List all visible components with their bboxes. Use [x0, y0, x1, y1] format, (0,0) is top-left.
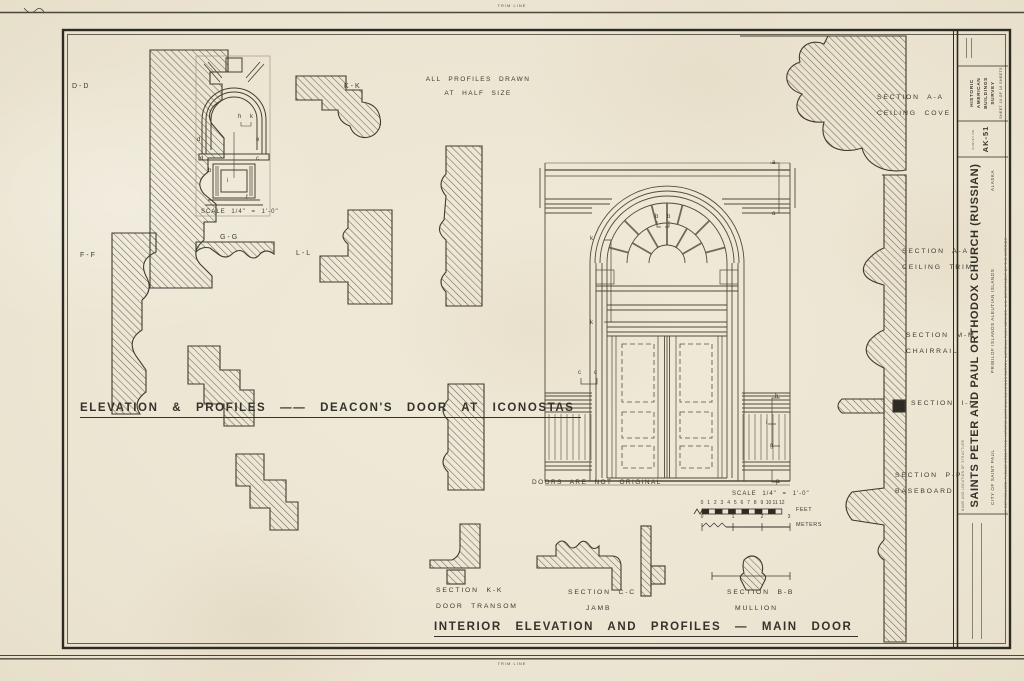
section-line1: SECTION B-B: [727, 589, 794, 596]
profile-tall-upper: [439, 146, 482, 306]
profile-label-ff: F-F: [80, 252, 97, 259]
profile-label-ll: L-L: [296, 250, 312, 257]
survey-sheet-count: SHEET 10 OF 10 SHEETS: [999, 66, 1003, 120]
graphic-scale-feet: [694, 509, 782, 514]
ref-letter: c: [256, 156, 259, 162]
fanlight-spokes: [609, 203, 725, 254]
ref-letter: b: [667, 214, 670, 220]
profile-tall-lower: [443, 384, 484, 490]
title-block-credits: [962, 517, 1006, 645]
ref-letter: f: [246, 195, 248, 201]
name-location-label: NAME AND LOCATION OF STRUCTURE: [961, 440, 965, 511]
title-block-name: NAME AND LOCATION OF STRUCTURE SAINTS PE…: [960, 158, 1004, 513]
ref-letter: b: [208, 168, 211, 174]
survey-title-line2: BUILDINGS SURVEY: [983, 66, 997, 120]
section-label-cc: SECTION C-C JAMB: [568, 589, 636, 612]
profiles-note-line1: ALL PROFILES DRAWN: [422, 76, 534, 83]
structure-location: PRIBILOF ISLANDS ALEUTIAN ISLANDS: [990, 269, 995, 373]
profile-b-b-mullion: [740, 556, 765, 590]
profile-c-c-jamb: [537, 541, 621, 590]
survey-title-line1: HISTORIC AMERICAN: [969, 66, 983, 120]
section-line2: BASEBOARD: [895, 488, 962, 495]
title-block-stamp: [962, 32, 1006, 64]
structure-state: ALASKA: [990, 170, 995, 191]
profile-label-dd: D-D: [72, 83, 90, 90]
profiles-note-line2: AT HALF SIZE: [422, 90, 534, 97]
ref-letter: d: [200, 156, 203, 162]
left-drawing-title: ELEVATION & PROFILES —— DEACON'S DOOR AT…: [80, 402, 581, 418]
profile-g-g: [196, 242, 274, 258]
profile-c-c-block: [651, 566, 665, 584]
ref-letter: a: [772, 211, 775, 217]
section-line1: SECTION K-K: [436, 587, 518, 594]
profile-c-c-bar: [641, 526, 651, 596]
scale-tick-feet: 12: [777, 501, 787, 506]
trim-line-label-top: TRIM LINE: [0, 3, 1024, 8]
section-line2: JAMB: [568, 605, 636, 612]
scale-tick-meters: 0: [697, 515, 707, 520]
ref-letter: b: [655, 214, 658, 220]
survey-no-value: AK-51: [981, 122, 990, 156]
section-label-bb: SECTION B-B MULLION: [727, 589, 794, 612]
section-line2: MULLION: [727, 605, 794, 612]
ref-letter: c: [594, 370, 597, 376]
scale-tick-meters: 2: [757, 515, 767, 520]
profile-k-k-foot: [447, 570, 465, 584]
structure-name: SAINTS PETER AND PAUL ORTHODOX CHURCH (R…: [969, 158, 981, 513]
section-line1: SECTION A-A: [877, 94, 951, 101]
profile-i-i-solid: [893, 400, 905, 412]
scale-tick-meters: 1: [728, 515, 738, 520]
section-line1: SECTION P-P: [895, 472, 962, 479]
ref-letter: i: [227, 178, 228, 184]
ref-letter: p: [776, 479, 779, 485]
survey-no-label: SURVEY NO.: [971, 122, 975, 156]
profile-f-f: [112, 233, 156, 414]
title-block-credit-line: IF REPRODUCED, PLEASE CREDIT THE HISTORI…: [1004, 158, 1010, 513]
ref-letter: e: [256, 137, 259, 143]
feet-unit-label: FEET: [796, 507, 812, 513]
drawing-canvas: [0, 0, 1024, 681]
profile-i-i: [838, 399, 884, 413]
doors-note: DOORS ARE NOT ORIGINAL: [532, 479, 662, 486]
trim-line-label-bottom: TRIM LINE: [0, 661, 1024, 666]
section-label-pp: SECTION P-P BASEBOARD: [895, 472, 962, 495]
meters-unit-label: METERS: [796, 522, 822, 528]
scale-tick-meters: 3: [784, 515, 794, 520]
section-line1: SECTION C-C: [568, 589, 636, 596]
ref-letter: i: [766, 420, 767, 426]
profiles-note: ALL PROFILES DRAWN AT HALF SIZE: [422, 76, 534, 97]
section-line2: DOOR TRANSOM: [436, 603, 518, 610]
ref-letter: g: [770, 443, 773, 449]
profile-step-2: [236, 454, 298, 530]
main-scale-label: SCALE 1/4" = 1'-0": [732, 491, 810, 497]
ref-letter: h: [238, 114, 241, 120]
title-block-survey-no: SURVEY NO. AK-51: [961, 122, 1005, 156]
ref-letter: d: [197, 137, 200, 143]
profile-label-kk: K-K: [344, 83, 362, 90]
ref-letter: k: [590, 236, 593, 242]
ref-letter: k: [250, 114, 253, 120]
ref-letter: h: [775, 394, 778, 400]
moulding-profiles-left: [112, 50, 484, 530]
plan-scale-label: SCALE 1/4" = 1'-0": [201, 209, 279, 215]
main-drawing-title: INTERIOR ELEVATION AND PROFILES — MAIN D…: [434, 621, 858, 637]
graphic-scale-meters: [702, 523, 790, 531]
structure-city: CITY OF SAINT PAUL: [990, 449, 995, 505]
section-label-kk: SECTION K-K DOOR TRANSOM: [436, 587, 518, 610]
ref-letter: a: [772, 160, 775, 166]
section-line2: CEILING COVE: [877, 110, 951, 117]
profile-k-k: [296, 76, 381, 138]
profile-label-gg: G-G: [220, 234, 239, 241]
title-block-survey: HISTORIC AMERICAN BUILDINGS SURVEY SHEET…: [961, 66, 1005, 120]
wall-section-right: [740, 36, 906, 642]
section-label-aa-cove: SECTION A-A CEILING COVE: [877, 94, 951, 117]
bottom-profiles: [430, 524, 790, 596]
ref-letter: c: [578, 370, 581, 376]
ref-letter: k: [590, 320, 593, 326]
habs-drawing-sheet: TRIM LINE TRIM LINE D-D K-K F-F G-G L-L …: [0, 0, 1024, 681]
profile-k-k-transom: [430, 524, 480, 568]
profile-l-l: [320, 210, 392, 304]
